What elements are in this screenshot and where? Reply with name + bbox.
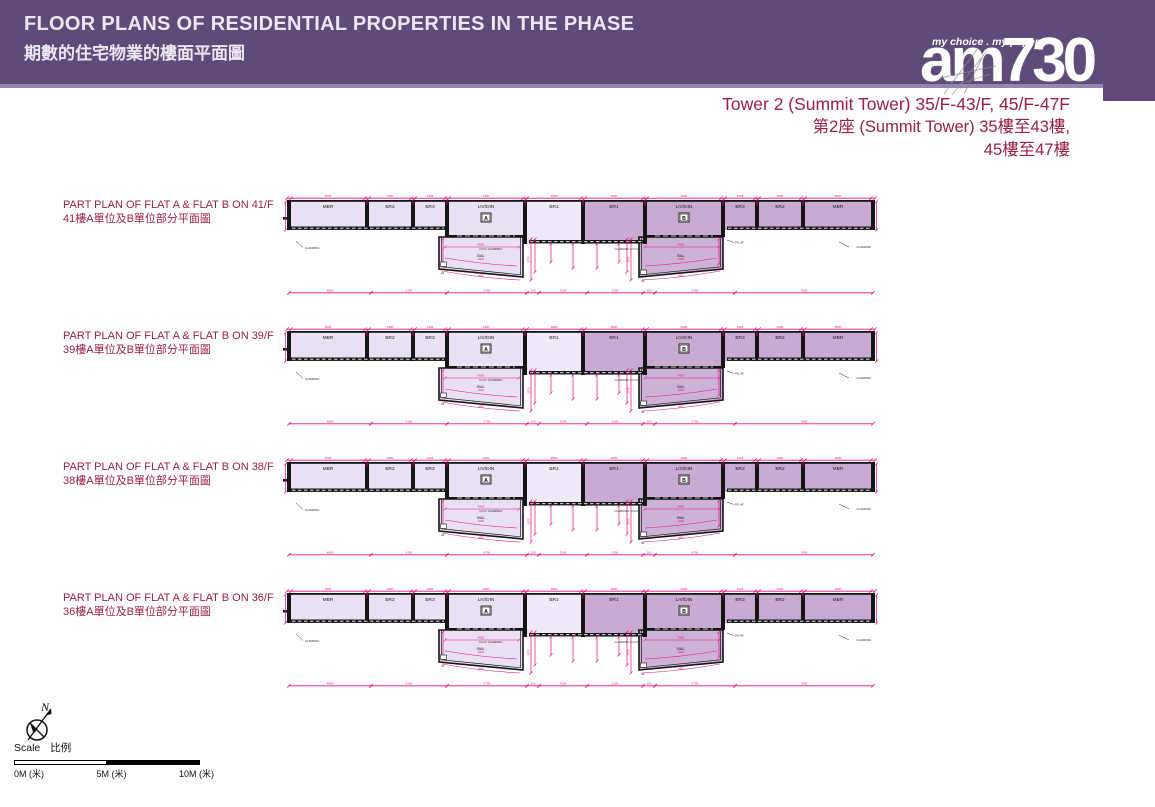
svg-text:AF: AF [441,533,445,537]
svg-text:4700: 4700 [484,419,491,423]
svg-text:2800: 2800 [551,325,558,329]
svg-text:BR1: BR1 [549,335,559,341]
svg-text:PD, AF: PD, AF [735,241,744,245]
svg-text:4800: 4800 [327,681,334,685]
svg-text:BR1: BR1 [609,466,619,472]
svg-text:BR1: BR1 [609,204,619,210]
svg-text:2800: 2800 [551,456,558,460]
svg-text:4400: 4400 [681,325,688,329]
plan-label-zh: 38樓A單位及B單位部分平面圖 [63,475,303,489]
svg-text:BR2: BR2 [775,597,785,603]
tower-title-line2: 第2座 (Summit Tower) 35樓至43樓, [722,116,1070,139]
svg-text:⌀801: ⌀801 [478,274,485,278]
svg-text:4400: 4400 [483,456,490,460]
svg-text:AF: AF [441,664,445,668]
svg-text:⌀520: ⌀520 [678,388,685,392]
scale-tick-10m: 10M (米) [179,767,214,780]
svg-text:BR1: BR1 [609,335,619,341]
scale-tick-5m: 5M (米) [96,767,126,780]
svg-text:BR3: BR3 [425,466,435,472]
svg-text:⌀801: ⌀801 [478,405,485,409]
svg-text:3100: 3100 [612,288,619,292]
svg-text:2450: 2450 [777,325,784,329]
svg-text:CLADDING: CLADDING [488,247,502,251]
svg-text:BR3: BR3 [735,204,745,210]
svg-text:4500: 4500 [678,243,685,247]
svg-text:1425: 1425 [737,456,744,460]
svg-text:2575: 2575 [627,256,631,263]
svg-text:⌀520: ⌀520 [478,257,485,261]
scale-tick-labels: 0M (米) 5M (米) 10M (米) [14,767,214,780]
svg-text:BR2: BR2 [775,335,785,341]
svg-text:4400: 4400 [681,194,688,198]
floor-plan-drawing: MBRBR2BR3LIV/DINABR1BR1LIV/DINBBR3BR2MBR… [283,192,879,300]
scale-segment-5-10m [107,760,200,765]
svg-text:A: A [484,347,488,353]
svg-text:A: A [484,478,488,484]
svg-text:CLADDING: CLADDING [305,377,319,381]
svg-text:4400: 4400 [483,194,490,198]
plan-label-zh: 36樓A單位及B單位部分平面圖 [63,606,303,620]
svg-text:2800: 2800 [551,194,558,198]
svg-text:4800: 4800 [327,288,334,292]
logo-background [1103,84,1155,101]
svg-text:CLADDING: CLADDING [305,639,319,643]
svg-text:2575: 2575 [527,518,531,525]
svg-text:BR1: BR1 [609,597,619,603]
svg-text:3100: 3100 [612,550,619,554]
svg-text:4500: 4500 [478,243,485,247]
svg-text:⌀520: ⌀520 [478,650,485,654]
svg-text:200: 200 [530,288,535,292]
svg-text:4500: 4500 [478,505,485,509]
svg-text:4700: 4700 [692,419,699,423]
svg-text:MBR: MBR [833,204,844,210]
svg-text:3600: 3600 [835,325,842,329]
svg-text:4700: 4700 [484,288,491,292]
svg-text:3600: 3600 [325,325,332,329]
svg-text:200: 200 [646,550,651,554]
svg-text:AF: AF [441,402,445,406]
svg-text:⌀520: ⌀520 [478,519,485,523]
svg-text:200: 200 [530,681,535,685]
svg-text:⌀801: ⌀801 [678,667,685,671]
scale-tick-0m: 0M (米) [14,767,44,780]
svg-text:3100: 3100 [612,419,619,423]
svg-text:2800: 2800 [551,587,558,591]
svg-text:3600: 3600 [325,587,332,591]
logo-sketch-lines [938,44,1033,96]
svg-text:LIV/DIN: LIV/DIN [478,466,495,472]
svg-text:CLADDING: CLADDING [305,508,319,512]
svg-text:LIV/DIN: LIV/DIN [478,204,495,210]
svg-text:4500: 4500 [678,505,685,509]
svg-text:CLADDING: CLADDING [857,245,871,249]
svg-text:⌀520: ⌀520 [678,519,685,523]
svg-text:⌀801: ⌀801 [478,536,485,540]
svg-text:BR3: BR3 [425,597,435,603]
svg-text:6100: 6100 [406,681,413,685]
svg-text:CLADDING: CLADDING [857,507,871,511]
plan-label-39f: PART PLAN OF FLAT A & FLAT B ON 39/F 39樓… [63,330,303,357]
svg-text:B: B [682,609,686,615]
svg-text:PD, AF: PD, AF [735,634,744,638]
scale-bar-graphic [14,760,200,765]
svg-text:1425: 1425 [427,587,434,591]
plan-label-en: PART PLAN OF FLAT A & FLAT B ON 41/F [63,199,303,213]
svg-text:2800: 2800 [611,325,618,329]
svg-text:6100: 6100 [406,288,413,292]
svg-text:200: 200 [530,550,535,554]
svg-text:2575: 2575 [627,649,631,656]
svg-text:BR2: BR2 [385,466,395,472]
floor-plan-drawing: MBRBR2BR3LIV/DINABR1BR1LIV/DINBBR3BR2MBR… [283,585,879,693]
svg-text:BR3: BR3 [735,597,745,603]
svg-text:MBR: MBR [323,204,334,210]
svg-text:AF: AF [641,541,645,545]
svg-text:BR2: BR2 [385,597,395,603]
svg-text:2450: 2450 [387,325,394,329]
svg-text:6100: 6100 [406,419,413,423]
svg-text:200: 200 [646,419,651,423]
floor-plan-drawing: MBRBR2BR3LIV/DINABR1BR1LIV/DINBBR3BR2MBR… [283,323,879,431]
svg-text:2800: 2800 [611,587,618,591]
svg-text:BR2: BR2 [385,335,395,341]
svg-text:1425: 1425 [427,456,434,460]
svg-text:7800: 7800 [801,550,808,554]
svg-text:MBR: MBR [833,335,844,341]
svg-text:3100: 3100 [560,550,567,554]
svg-text:BR1: BR1 [549,597,559,603]
svg-text:2450: 2450 [777,587,784,591]
svg-text:⌀801: ⌀801 [678,536,685,540]
svg-text:MBR: MBR [833,597,844,603]
svg-text:200: 200 [646,681,651,685]
svg-text:CLADDING: CLADDING [488,640,502,644]
svg-text:AF: AF [641,279,645,283]
svg-text:4400: 4400 [681,456,688,460]
svg-text:3100: 3100 [560,419,567,423]
svg-text:1425: 1425 [737,587,744,591]
plan-drawing-41f: MBRBR2BR3LIV/DINABR1BR1LIV/DINBBR3BR2MBR… [283,192,879,300]
scale-title-zh: 比例 [50,742,71,754]
scale-title-en: Scale [14,742,40,754]
tower-title: Tower 2 (Summit Tower) 35/F-43/F, 45/F-4… [722,92,1070,162]
svg-text:BR2: BR2 [775,204,785,210]
svg-text:CLADDING: CLADDING [488,378,502,382]
svg-text:7800: 7800 [801,681,808,685]
scale-title: Scale比例 [14,740,214,755]
svg-text:7800: 7800 [801,288,808,292]
svg-text:PD, AF: PD, AF [735,503,744,507]
svg-text:CLADDING: CLADDING [305,246,319,250]
scale-bar: Scale比例 0M (米) 5M (米) 10M (米) [14,740,214,780]
svg-text:2575: 2575 [627,387,631,394]
plan-drawing-36f: MBRBR2BR3LIV/DINABR1BR1LIV/DINBBR3BR2MBR… [283,585,879,693]
svg-text:MBR: MBR [833,466,844,472]
plan-label-41f: PART PLAN OF FLAT A & FLAT B ON 41/F 41樓… [63,199,303,226]
svg-text:B: B [682,478,686,484]
svg-text:2575: 2575 [627,518,631,525]
plan-label-zh: 41樓A單位及B單位部分平面圖 [63,213,303,227]
plan-label-38f: PART PLAN OF FLAT A & FLAT B ON 38/F 38樓… [63,461,303,488]
svg-text:⌀520: ⌀520 [678,650,685,654]
svg-text:AF: AF [641,672,645,676]
svg-text:B: B [682,347,686,353]
svg-text:AF: AF [441,271,445,275]
svg-text:4800: 4800 [327,550,334,554]
svg-text:4700: 4700 [484,681,491,685]
floor-plan-drawing: MBRBR2BR3LIV/DINABR1BR1LIV/DINBBR3BR2MBR… [283,454,879,562]
svg-text:4500: 4500 [478,636,485,640]
svg-text:2450: 2450 [387,456,394,460]
svg-text:3100: 3100 [560,681,567,685]
svg-text:⌀801: ⌀801 [678,405,685,409]
svg-text:1425: 1425 [427,194,434,198]
svg-text:2575: 2575 [527,256,531,263]
svg-text:7800: 7800 [801,419,808,423]
svg-text:⌀520: ⌀520 [478,388,485,392]
svg-text:BR1: BR1 [549,204,559,210]
svg-text:LIV/DIN: LIV/DIN [478,597,495,603]
svg-text:3600: 3600 [325,456,332,460]
svg-text:CLADDING: CLADDING [615,509,629,513]
svg-text:2450: 2450 [387,194,394,198]
svg-text:200: 200 [530,419,535,423]
svg-text:CLADDING: CLADDING [488,509,502,513]
svg-text:LIV/DIN: LIV/DIN [676,335,693,341]
plan-drawing-39f: MBRBR2BR3LIV/DINABR1BR1LIV/DINBBR3BR2MBR… [283,323,879,431]
svg-text:BR2: BR2 [385,204,395,210]
svg-text:4800: 4800 [327,419,334,423]
svg-text:4400: 4400 [681,587,688,591]
svg-text:4500: 4500 [678,636,685,640]
svg-text:B: B [682,216,686,222]
svg-text:3600: 3600 [835,456,842,460]
svg-text:A: A [484,609,488,615]
svg-text:⌀801: ⌀801 [678,274,685,278]
svg-text:⌀520: ⌀520 [678,257,685,261]
svg-text:3600: 3600 [325,194,332,198]
svg-text:MBR: MBR [323,466,334,472]
svg-text:BR2: BR2 [775,466,785,472]
svg-text:BR3: BR3 [735,335,745,341]
svg-text:AF: AF [641,410,645,414]
svg-text:PD, AF: PD, AF [735,372,744,376]
svg-text:3100: 3100 [612,681,619,685]
svg-text:CLADDING: CLADDING [857,638,871,642]
svg-text:MBR: MBR [323,597,334,603]
svg-text:2450: 2450 [777,194,784,198]
svg-text:BR3: BR3 [735,466,745,472]
svg-text:MBR: MBR [323,335,334,341]
svg-text:CLADDING: CLADDING [615,378,629,382]
svg-text:LIV/DIN: LIV/DIN [478,335,495,341]
plan-label-en: PART PLAN OF FLAT A & FLAT B ON 38/F [63,461,303,475]
svg-text:1425: 1425 [427,325,434,329]
svg-text:CLADDING: CLADDING [857,376,871,380]
svg-text:2575: 2575 [527,649,531,656]
svg-text:BR3: BR3 [425,204,435,210]
svg-text:4400: 4400 [483,325,490,329]
svg-text:BR1: BR1 [549,466,559,472]
plan-label-en: PART PLAN OF FLAT A & FLAT B ON 36/F [63,592,303,606]
plan-label-36f: PART PLAN OF FLAT A & FLAT B ON 36/F 36樓… [63,592,303,619]
svg-text:3600: 3600 [835,194,842,198]
svg-text:4500: 4500 [478,374,485,378]
svg-text:200: 200 [646,288,651,292]
svg-text:2800: 2800 [611,194,618,198]
svg-text:2575: 2575 [527,387,531,394]
svg-text:6100: 6100 [406,550,413,554]
tower-title-line3: 45樓至47樓 [722,139,1070,162]
brochure-page: FLOOR PLANS OF RESIDENTIAL PROPERTIES IN… [0,0,1155,807]
svg-text:LIV/DIN: LIV/DIN [676,204,693,210]
svg-text:4700: 4700 [692,681,699,685]
svg-text:LIV/DIN: LIV/DIN [676,597,693,603]
svg-text:3100: 3100 [560,288,567,292]
plan-label-zh: 39樓A單位及B單位部分平面圖 [63,344,303,358]
svg-text:2450: 2450 [387,587,394,591]
svg-text:1425: 1425 [737,194,744,198]
svg-text:4700: 4700 [484,550,491,554]
scale-segment-0-5m [14,760,107,765]
svg-text:LIV/DIN: LIV/DIN [676,466,693,472]
svg-text:2450: 2450 [777,456,784,460]
svg-text:4400: 4400 [483,587,490,591]
svg-text:BR3: BR3 [425,335,435,341]
svg-text:3600: 3600 [835,587,842,591]
svg-text:4700: 4700 [692,288,699,292]
svg-text:1425: 1425 [737,325,744,329]
svg-text:⌀801: ⌀801 [478,667,485,671]
svg-text:2800: 2800 [611,456,618,460]
svg-text:4700: 4700 [692,550,699,554]
svg-text:4500: 4500 [678,374,685,378]
plan-label-en: PART PLAN OF FLAT A & FLAT B ON 39/F [63,330,303,344]
svg-text:CLADDING: CLADDING [615,247,629,251]
svg-text:CLADDING: CLADDING [615,640,629,644]
svg-text:A: A [484,216,488,222]
plan-drawing-38f: MBRBR2BR3LIV/DINABR1BR1LIV/DINBBR3BR2MBR… [283,454,879,562]
